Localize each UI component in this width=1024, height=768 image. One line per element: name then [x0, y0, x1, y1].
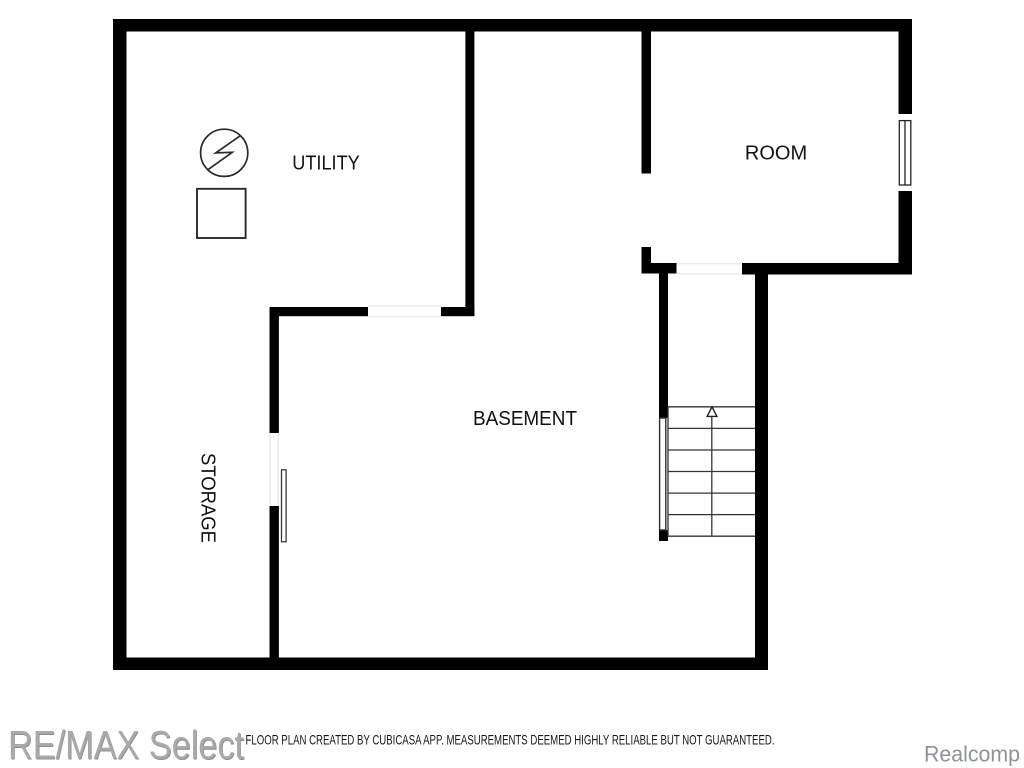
svg-text:Realcomp: Realcomp	[924, 742, 1020, 767]
svg-text:RE/MAX Select: RE/MAX Select	[8, 724, 244, 768]
svg-text:FLOOR PLAN CREATED BY CUBICASA: FLOOR PLAN CREATED BY CUBICASA APP. MEAS…	[246, 731, 775, 747]
svg-text:UTILITY: UTILITY	[292, 153, 360, 175]
svg-text:BASEMENT: BASEMENT	[473, 408, 577, 430]
svg-text:STORAGE: STORAGE	[197, 453, 219, 543]
svg-text:ROOM: ROOM	[745, 143, 807, 165]
